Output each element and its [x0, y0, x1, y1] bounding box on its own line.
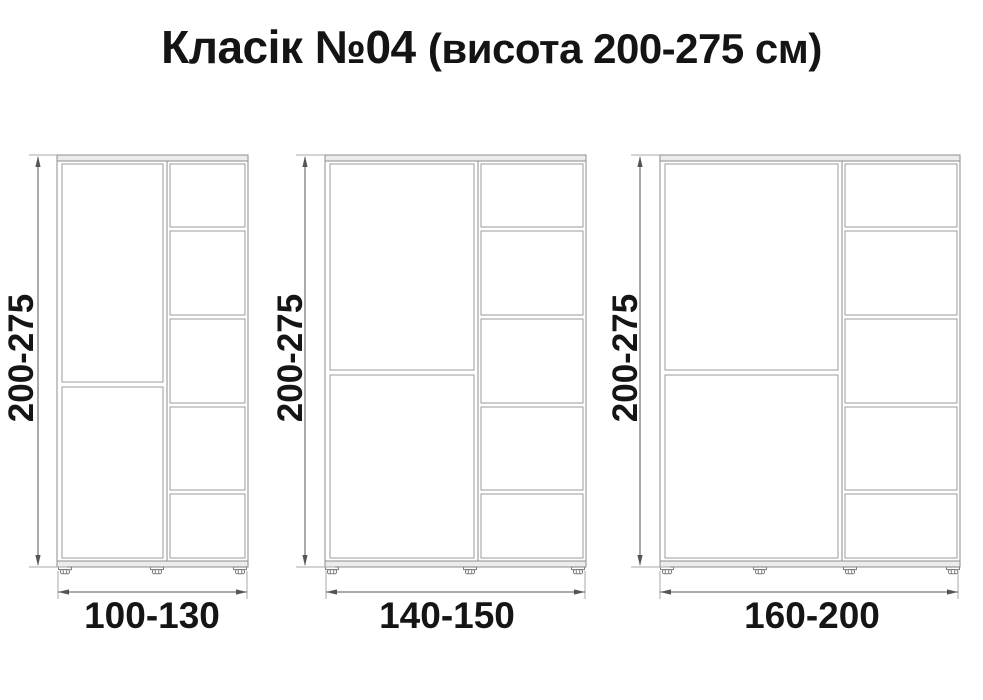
cabinet-carcass	[325, 155, 586, 567]
arrow-up	[35, 156, 40, 167]
width-dimension-label: 160-200	[744, 595, 880, 637]
arrow-right	[947, 589, 958, 594]
bottom-panel	[660, 561, 960, 567]
height-dimension-label: 200-275	[606, 294, 646, 422]
bottom-panel	[325, 561, 586, 567]
arrow-down	[302, 555, 307, 566]
top-panel	[325, 155, 586, 161]
height-dimension-label: 200-275	[271, 294, 311, 422]
arrow-up	[302, 156, 307, 167]
arrow-left	[58, 589, 69, 594]
width-dimension-label: 100-130	[84, 595, 220, 637]
arrow-right	[236, 589, 247, 594]
arrow-left	[660, 589, 671, 594]
foot	[234, 567, 247, 574]
cabinet-3	[631, 155, 960, 599]
diagram-canvas: Класік №04 (висота 200-275 см)	[0, 0, 983, 700]
width-dimension-label: 140-150	[379, 595, 515, 637]
arrow-down	[35, 555, 40, 566]
foot	[59, 567, 72, 574]
foot	[572, 567, 585, 574]
top-panel	[57, 155, 248, 161]
arrow-right	[574, 589, 585, 594]
arrow-left	[326, 589, 337, 594]
foot	[754, 567, 767, 574]
cabinet-carcass	[660, 155, 960, 567]
arrow-down	[637, 555, 642, 566]
foot	[844, 567, 857, 574]
foot	[151, 567, 164, 574]
cabinet-carcass	[57, 155, 248, 567]
foot	[661, 567, 674, 574]
foot	[326, 567, 339, 574]
bottom-panel	[57, 561, 248, 567]
cabinet-2	[296, 155, 586, 599]
top-panel	[660, 155, 960, 161]
cabinet-1	[29, 155, 248, 599]
foot	[464, 567, 477, 574]
arrow-up	[637, 156, 642, 167]
height-dimension-label: 200-275	[2, 294, 42, 422]
